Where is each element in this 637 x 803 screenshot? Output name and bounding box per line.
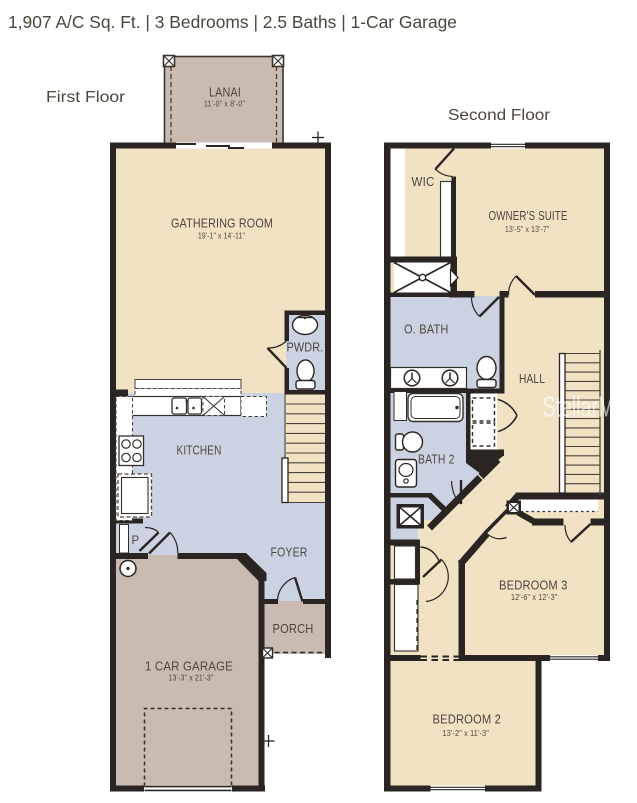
svg-text:PORCH: PORCH [273,621,314,636]
svg-text:13'-3" x 21'-3": 13'-3" x 21'-3" [169,674,214,683]
svg-text:WIC: WIC [412,174,435,189]
svg-text:BEDROOM 2: BEDROOM 2 [433,712,502,727]
svg-text:O. BATH: O. BATH [404,322,449,337]
svg-text:1,907 A/C Sq. Ft. | 3 Bedrooms: 1,907 A/C Sq. Ft. | 3 Bedrooms | 2.5 Bat… [8,12,457,32]
svg-text:1 CAR GARAGE: 1 CAR GARAGE [145,659,233,674]
svg-text:13'-5" x 13'-7": 13'-5" x 13'-7" [505,225,550,234]
svg-text:12'-6" x 12'-3": 12'-6" x 12'-3" [511,593,557,602]
svg-text:OWNER'S SUITE: OWNER'S SUITE [489,208,568,223]
svg-text:13'-2" x 11'-3": 13'-2" x 11'-3" [443,729,490,738]
svg-text:BATH 2: BATH 2 [418,452,455,467]
svg-text:P: P [132,535,140,547]
svg-text:First Floor: First Floor [46,89,125,106]
svg-text:Second Floor: Second Floor [448,107,550,124]
svg-text:GATHERING ROOM: GATHERING ROOM [171,216,273,231]
svg-text:PWDR.: PWDR. [287,340,324,355]
svg-text:11'-0" x 8'-0": 11'-0" x 8'-0" [204,100,245,109]
svg-text:LANAI: LANAI [209,85,241,100]
svg-text:19'-1" x 14'-11": 19'-1" x 14'-11" [198,232,245,241]
svg-text:KITCHEN: KITCHEN [177,443,222,458]
svg-text:BEDROOM 3: BEDROOM 3 [499,578,568,593]
svg-text:HALL: HALL [519,371,545,386]
svg-text:StellarMLS: StellarMLS [543,392,637,424]
svg-text:FOYER: FOYER [271,545,308,560]
